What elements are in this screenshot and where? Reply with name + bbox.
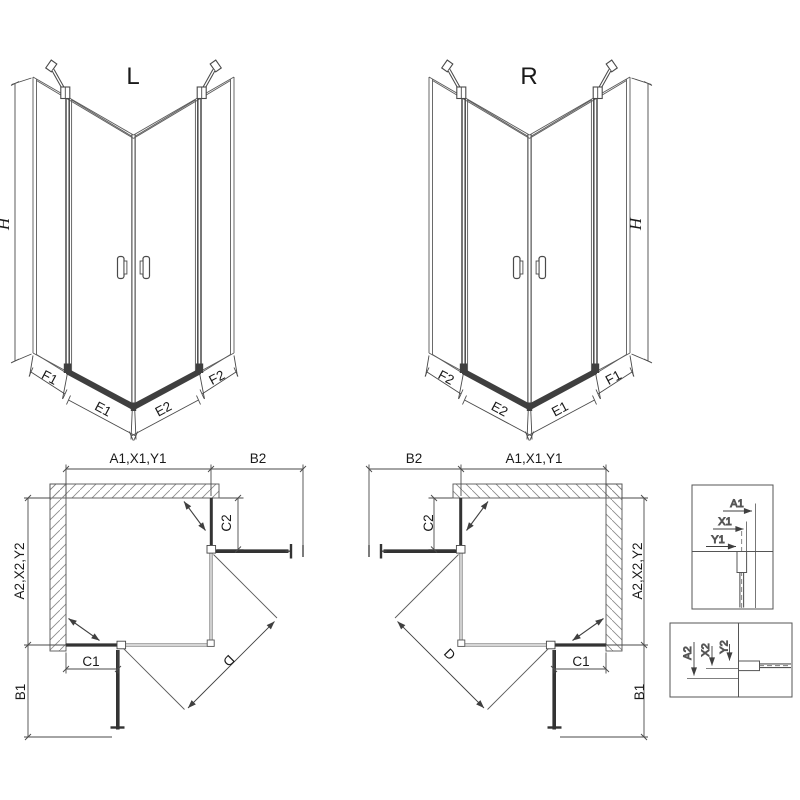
iso-right-height-dim-label: H xyxy=(626,216,645,231)
iso-view-right: R H F2 E2 E1 F1 xyxy=(425,60,652,440)
iso-right-dim-e1: E1 xyxy=(549,399,571,420)
plan-left-dim-b1: B1 xyxy=(13,684,28,701)
plan-view-right: B2 A1,X1,Y1 A2,X2,Y2 B1 C2 C1 D xyxy=(366,451,648,740)
shower-enclosure-technical-drawing: L H F1 E1 E2 F2 R H F2 E2 E1 F1 A1,X1,Y1… xyxy=(0,0,800,800)
plan-left-dim-b2: B2 xyxy=(250,451,267,466)
plan-right-dim-b1: B1 xyxy=(632,684,647,701)
plan-view-left: A1,X1,Y1 B2 A2,X2,Y2 B1 C2 C1 D xyxy=(12,451,306,740)
iso-left-dim-e1: E1 xyxy=(92,399,114,420)
iso-left-dim-e2: E2 xyxy=(153,399,175,420)
plan-right-dim-d: D xyxy=(441,646,459,664)
plan-right-dim-a1x1y1: A1,X1,Y1 xyxy=(505,451,562,466)
detail-view-wall-section-top: A1 X1 Y1 xyxy=(692,485,773,609)
detail-top-dim-y1: Y1 xyxy=(711,534,724,546)
iso-left-version-label: L xyxy=(126,63,139,90)
iso-left-dim-f2: F2 xyxy=(206,367,227,388)
plan-right-dim-c2: C2 xyxy=(421,514,436,531)
detail-top-dim-a1: A1 xyxy=(730,498,743,510)
plan-left-dim-a2x2y2: A2,X2,Y2 xyxy=(12,542,27,599)
iso-left-dim-f1: F1 xyxy=(39,367,60,388)
plan-right-dim-c1: C1 xyxy=(572,654,589,669)
iso-left-height-dim-label: H xyxy=(0,216,13,231)
plan-left-dim-c2: C2 xyxy=(219,514,234,531)
iso-right-version-label: R xyxy=(520,63,537,90)
plan-right-dim-b2: B2 xyxy=(406,451,423,466)
iso-view-left: L H F1 E1 E2 F2 xyxy=(0,60,238,440)
plan-left-dim-c1: C1 xyxy=(82,654,99,669)
detail-view-wall-section-bottom: A2 X2 Y2 xyxy=(670,623,792,697)
detail-bottom-dim-x2: X2 xyxy=(700,643,712,656)
iso-right-dim-f1: F1 xyxy=(603,367,624,388)
iso-right-dim-e2: E2 xyxy=(489,399,511,420)
plan-right-dim-a2x2y2: A2,X2,Y2 xyxy=(630,542,645,599)
plan-left-dim-d: D xyxy=(220,652,238,670)
plan-left-dim-a1x1y1: A1,X1,Y1 xyxy=(109,451,166,466)
detail-bottom-dim-a2: A2 xyxy=(682,646,694,659)
detail-bottom-dim-y2: Y2 xyxy=(719,640,731,653)
iso-right-dim-f2: F2 xyxy=(436,367,457,388)
detail-top-dim-x1: X1 xyxy=(718,516,731,528)
